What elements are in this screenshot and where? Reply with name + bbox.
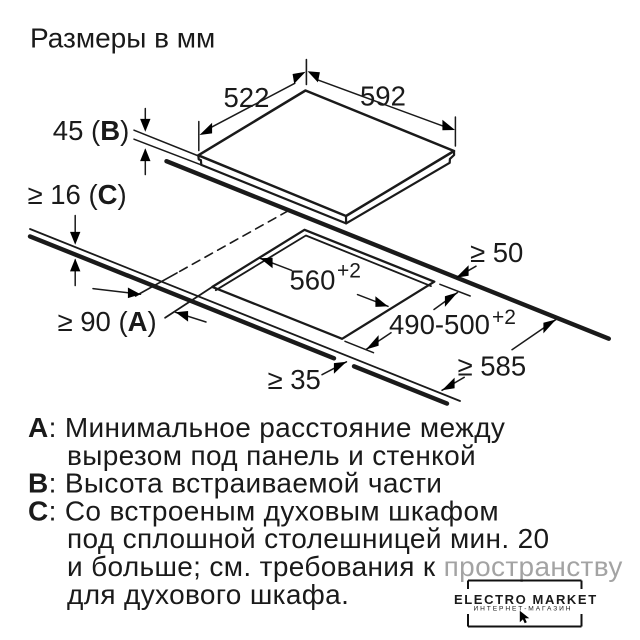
svg-text:Размеры в мм: Размеры в мм (30, 23, 215, 54)
svg-text:≥ 35: ≥ 35 (268, 364, 321, 395)
svg-text:+2: +2 (337, 260, 361, 283)
svg-text:C: Со встроеным духовым шкафом: C: Со встроеным духовым шкафом (28, 495, 499, 526)
svg-text:≥ 90 (A): ≥ 90 (A) (58, 306, 157, 337)
svg-text:А: Минимальное расстояние межд: А: Минимальное расстояние между (28, 412, 505, 443)
svg-text:522: 522 (224, 82, 270, 113)
svg-text:+2: +2 (492, 306, 516, 329)
svg-text:ИНТЕРНЕТ-МАГАЗИН: ИНТЕРНЕТ-МАГАЗИН (474, 606, 573, 613)
svg-text:ELECTRO MARKET: ELECTRO MARKET (454, 592, 598, 607)
svg-text:45 (B): 45 (B) (53, 115, 129, 146)
svg-text:для духового шкафа.: для духового шкафа. (67, 579, 349, 610)
svg-text:≥ 16 (C): ≥ 16 (C) (28, 179, 127, 210)
svg-text:490-500: 490-500 (389, 309, 490, 340)
svg-text:≥ 50: ≥ 50 (470, 237, 523, 268)
svg-text:592: 592 (360, 81, 406, 112)
svg-text:≥ 585: ≥ 585 (458, 350, 527, 381)
svg-text:под сплошной столешницей мин.: под сплошной столешницей мин. 20 (67, 523, 549, 554)
svg-text:вырезом под панель и стенкой: вырезом под панель и стенкой (67, 440, 476, 471)
svg-text:B: Высота встраиваемой части: B: Высота встраиваемой части (28, 468, 442, 499)
svg-text:560: 560 (290, 265, 336, 296)
